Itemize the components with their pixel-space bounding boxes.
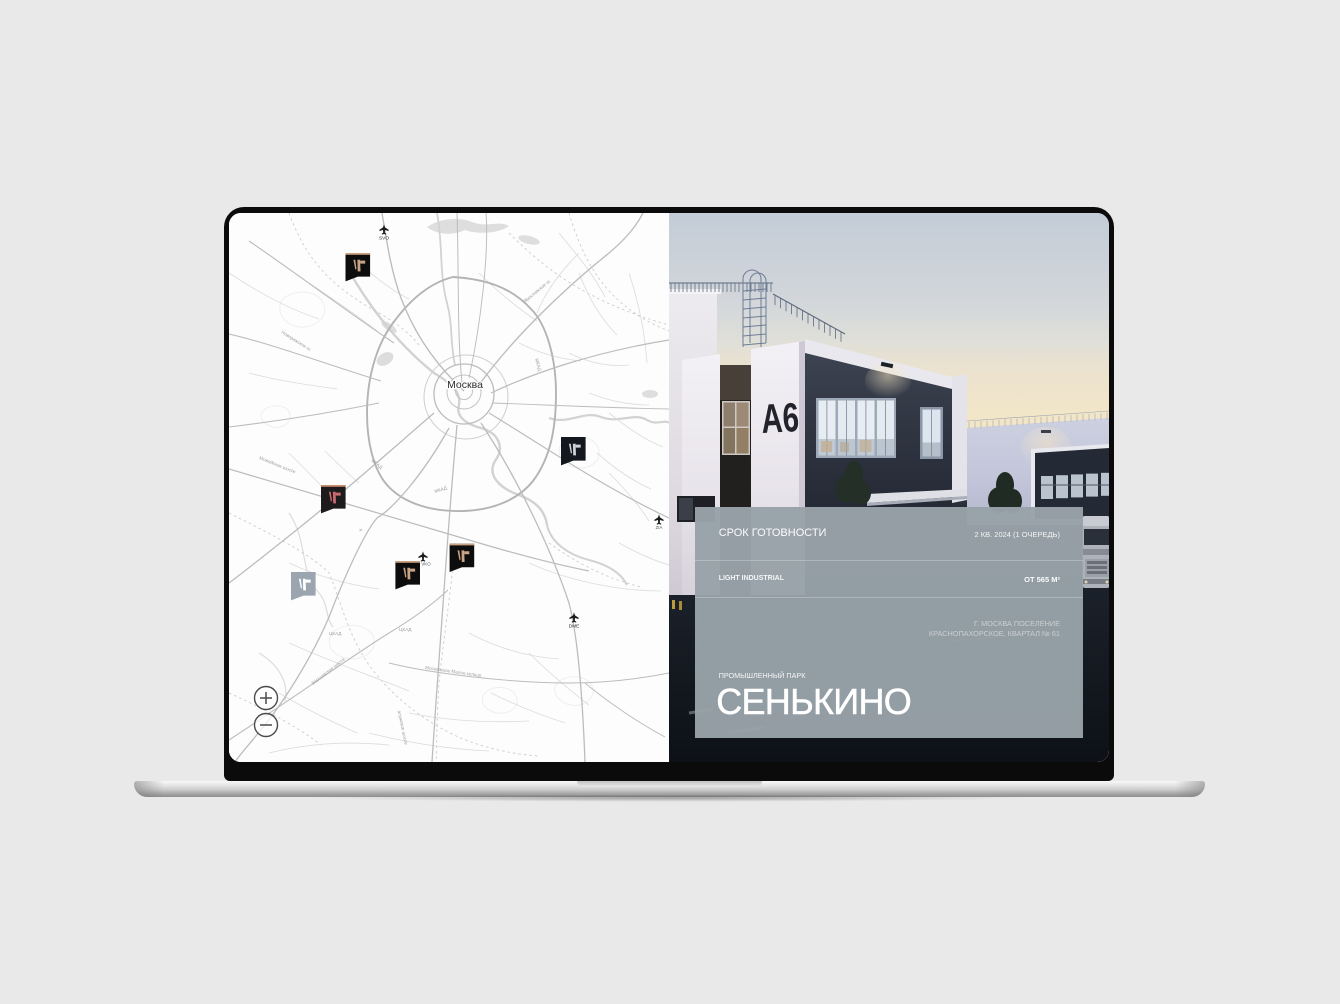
svg-text:ЦКАД: ЦКАД [399,627,412,632]
svg-text:VKO: VKO [421,562,431,567]
svg-text:A6: A6 [760,394,800,442]
svg-text:ЦКАД: ЦКАД [329,631,342,636]
svg-text:SVO: SVO [379,236,389,242]
svg-text:ZIA: ZIA [656,525,663,530]
svg-text:DME: DME [569,624,580,630]
svg-text:Москва: Москва [447,379,483,391]
